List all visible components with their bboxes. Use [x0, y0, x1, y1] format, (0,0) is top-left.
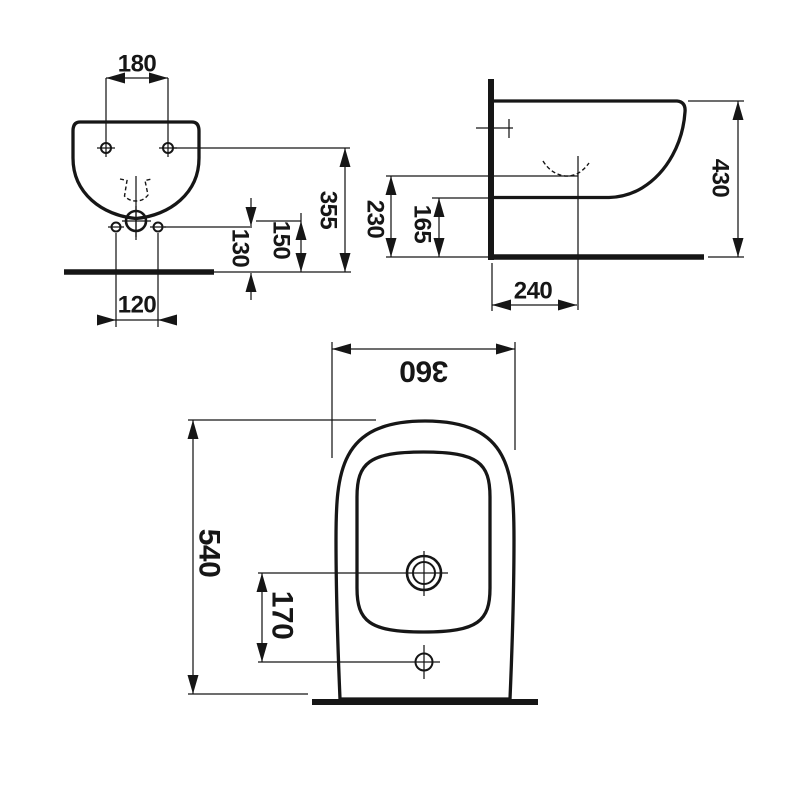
dim-side-height-underside: 165: [409, 205, 436, 244]
side-dimension-labels: 230 165 430 240: [362, 159, 734, 305]
trap-dashed-outline: [543, 161, 589, 176]
technical-drawing-canvas: 180 355 150 130 120: [0, 0, 800, 800]
side-view: 230 165 430 240: [362, 79, 745, 311]
dim-front-height-lower-holes: 130: [227, 229, 254, 268]
dim-plan-depth: 540: [193, 529, 226, 578]
dim-side-height-overall: 430: [707, 159, 734, 198]
dim-side-trap-setout: 240: [514, 278, 553, 305]
dim-front-height-drain: 150: [268, 221, 295, 260]
front-drain-outlet: [122, 206, 151, 237]
plan-view: 360 540 170: [188, 342, 538, 702]
dim-side-height-trap: 230: [362, 200, 389, 239]
bidet-side-outline: [491, 101, 685, 198]
front-upper-mounting-hole-left: [97, 139, 115, 157]
dim-plan-drain-to-taphole: 170: [266, 591, 299, 640]
front-dimension-labels: 180 355 150 130 120: [118, 51, 342, 319]
dim-front-hole-spacing-top: 180: [118, 51, 157, 78]
plan-dimension-labels: 360 540 170: [193, 355, 449, 640]
bidet-plan-outer-outline: [336, 421, 514, 699]
bidet-plan-basin-outline: [357, 452, 490, 632]
front-lower-fixing-hole-right: [150, 223, 166, 232]
dim-front-height-top-holes: 355: [315, 191, 342, 230]
wall-inlet-cross-mark: [476, 119, 513, 138]
front-lower-fixing-hole-left: [108, 223, 124, 232]
plan-dimension-lines: [188, 342, 515, 694]
front-dimension-lines: [97, 78, 350, 327]
front-view: 180 355 150 130 120: [64, 51, 351, 328]
bidet-installation-drawing: 180 355 150 130 120: [0, 0, 800, 800]
dim-front-hole-spacing-bottom: 120: [118, 292, 157, 319]
dim-plan-width: 360: [400, 355, 449, 388]
side-dimension-lines: [386, 101, 744, 311]
